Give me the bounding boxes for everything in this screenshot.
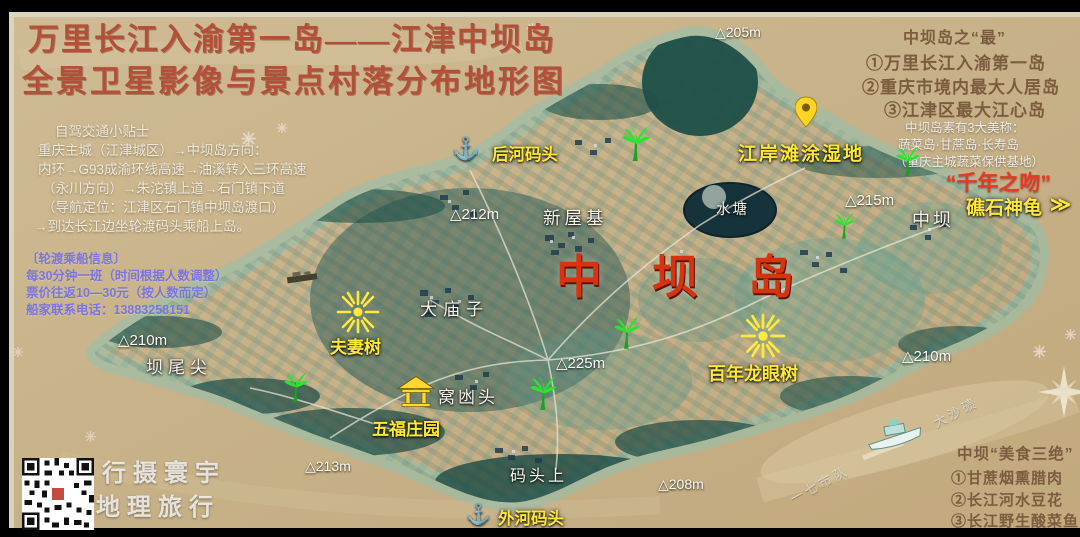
ferry-info-heading: 〔轮渡乘船信息〕 xyxy=(26,252,126,266)
houhe-wharf-label: 后河码头 xyxy=(492,146,558,165)
food-item: ①甘蔗烟熏腊肉 xyxy=(951,470,1063,487)
elevation-marker: △210m xyxy=(118,332,167,349)
driving-tips-line: 重庆主城（江津城区）→中坝岛方向： xyxy=(38,143,268,159)
qr-code xyxy=(22,458,94,530)
driving-tips-line: 内环→G93成渝环线高速→油溪转入三环高速 xyxy=(38,162,307,178)
xinwuji-label: 新屋基 xyxy=(543,208,608,228)
barge-icon xyxy=(286,268,322,286)
palm-tree-icon xyxy=(834,212,855,239)
watermark-line1: 行摄寰宇 xyxy=(102,461,226,489)
elevation-marker: △213m xyxy=(305,458,351,474)
couple-tree-label: 夫妻树 xyxy=(330,338,381,358)
elevation-marker: △212m xyxy=(450,206,499,223)
satellite-map-screenshot: 万里长江入渝第一岛——江津中坝岛 全景卫星影像与景点村落分布地形图 自驾交通小贴… xyxy=(0,0,1080,537)
elevation-marker: △208m xyxy=(658,476,704,492)
driving-tips-heading: 自驾交通小贴士 xyxy=(55,124,150,140)
pond-label: 水塘 xyxy=(716,202,749,219)
centennial-longan-label: 百年龙眼树 xyxy=(708,364,798,385)
wufu-manor-label: 五福庄园 xyxy=(372,420,440,440)
snowflake-icon xyxy=(12,346,24,358)
couple-tree-icon xyxy=(336,290,380,334)
map-title-line2: 全景卫星影像与景点村落分布地形图 xyxy=(22,64,566,100)
palm-tree-icon xyxy=(622,126,650,161)
palm-tree-icon xyxy=(284,372,308,402)
driving-tips-line: （导航定位：江津区石门镇中坝岛渡口） xyxy=(42,200,285,216)
elevation-marker: △210m xyxy=(902,348,951,365)
anchor-icon: ⚓ xyxy=(452,136,479,162)
reef-turtle-label: 礁石神龟 xyxy=(966,198,1042,220)
driving-tips-line: （永川方向）→朱沱镇上道→石门镇下道 xyxy=(42,181,285,197)
matoushang-label: 码头上 xyxy=(510,468,567,486)
millennium-kiss-label: “千年之吻” xyxy=(946,172,1051,196)
ferry-info-line: 船家联系电话：13883258151 xyxy=(26,303,190,317)
palm-tree-icon xyxy=(614,316,640,349)
snowflake-icon xyxy=(1032,344,1047,359)
superlative-item: ②重庆市境内最大人居岛 xyxy=(862,78,1060,98)
map-title-line1: 万里长江入渝第一岛——江津中坝岛 xyxy=(28,22,556,58)
superlative-item: ①万里长江入渝第一岛 xyxy=(866,54,1046,74)
island-name-label: 中坝岛 xyxy=(556,252,844,305)
superlatives-heading: 中坝岛之“最” xyxy=(903,30,1006,48)
wodangtou-label: 窝凼头 xyxy=(438,388,498,408)
riverbank-wetland-label: 江岸滩涂湿地 xyxy=(738,144,864,166)
reef-turtle-mark-icon: ≫ xyxy=(1050,194,1071,217)
palm-tree-icon xyxy=(896,146,920,176)
snowflake-icon xyxy=(1064,328,1077,341)
pavilion-icon xyxy=(396,376,436,407)
ferry-info-line: 票价往返10—30元（按人数而定） xyxy=(26,286,216,300)
superlative-item: ③江津区最大江心岛 xyxy=(884,101,1046,121)
elevation-marker: △225m xyxy=(556,355,605,372)
ferry-info-line: 每30分钟一班（时间根据人数调整） xyxy=(26,269,227,283)
snowflake-icon xyxy=(276,122,288,134)
centennial-longan-icon xyxy=(740,313,786,359)
driving-tips-line: →到达长江边坐轮渡码头乘船上岛。 xyxy=(34,219,250,235)
compass-rose-icon xyxy=(1038,366,1080,418)
food-item: ②长江河水豆花 xyxy=(951,492,1063,509)
map-pin-icon xyxy=(795,96,817,128)
watermark-line2: 地理旅行 xyxy=(96,495,220,523)
elevation-marker: △215m xyxy=(845,192,894,209)
zhongba-village-label: 中坝 xyxy=(912,210,954,231)
bawaijian-label: 坝尾尖 xyxy=(146,358,212,378)
food-heading: 中坝“美食三绝” xyxy=(957,446,1074,464)
nickname-line: 中坝岛素有3大美称： xyxy=(905,121,1024,135)
anchor-icon: ⚓ xyxy=(466,502,491,527)
snowflake-icon xyxy=(84,430,97,443)
food-item: ③长江野生酸菜鱼 xyxy=(951,513,1079,530)
damiaozi-label: 大庙子 xyxy=(420,300,489,320)
ferry-ship-icon xyxy=(858,416,934,460)
elevation-marker: △205m xyxy=(715,24,761,40)
waihe-wharf-label: 外河码头 xyxy=(498,510,564,529)
palm-tree-icon xyxy=(530,376,557,410)
